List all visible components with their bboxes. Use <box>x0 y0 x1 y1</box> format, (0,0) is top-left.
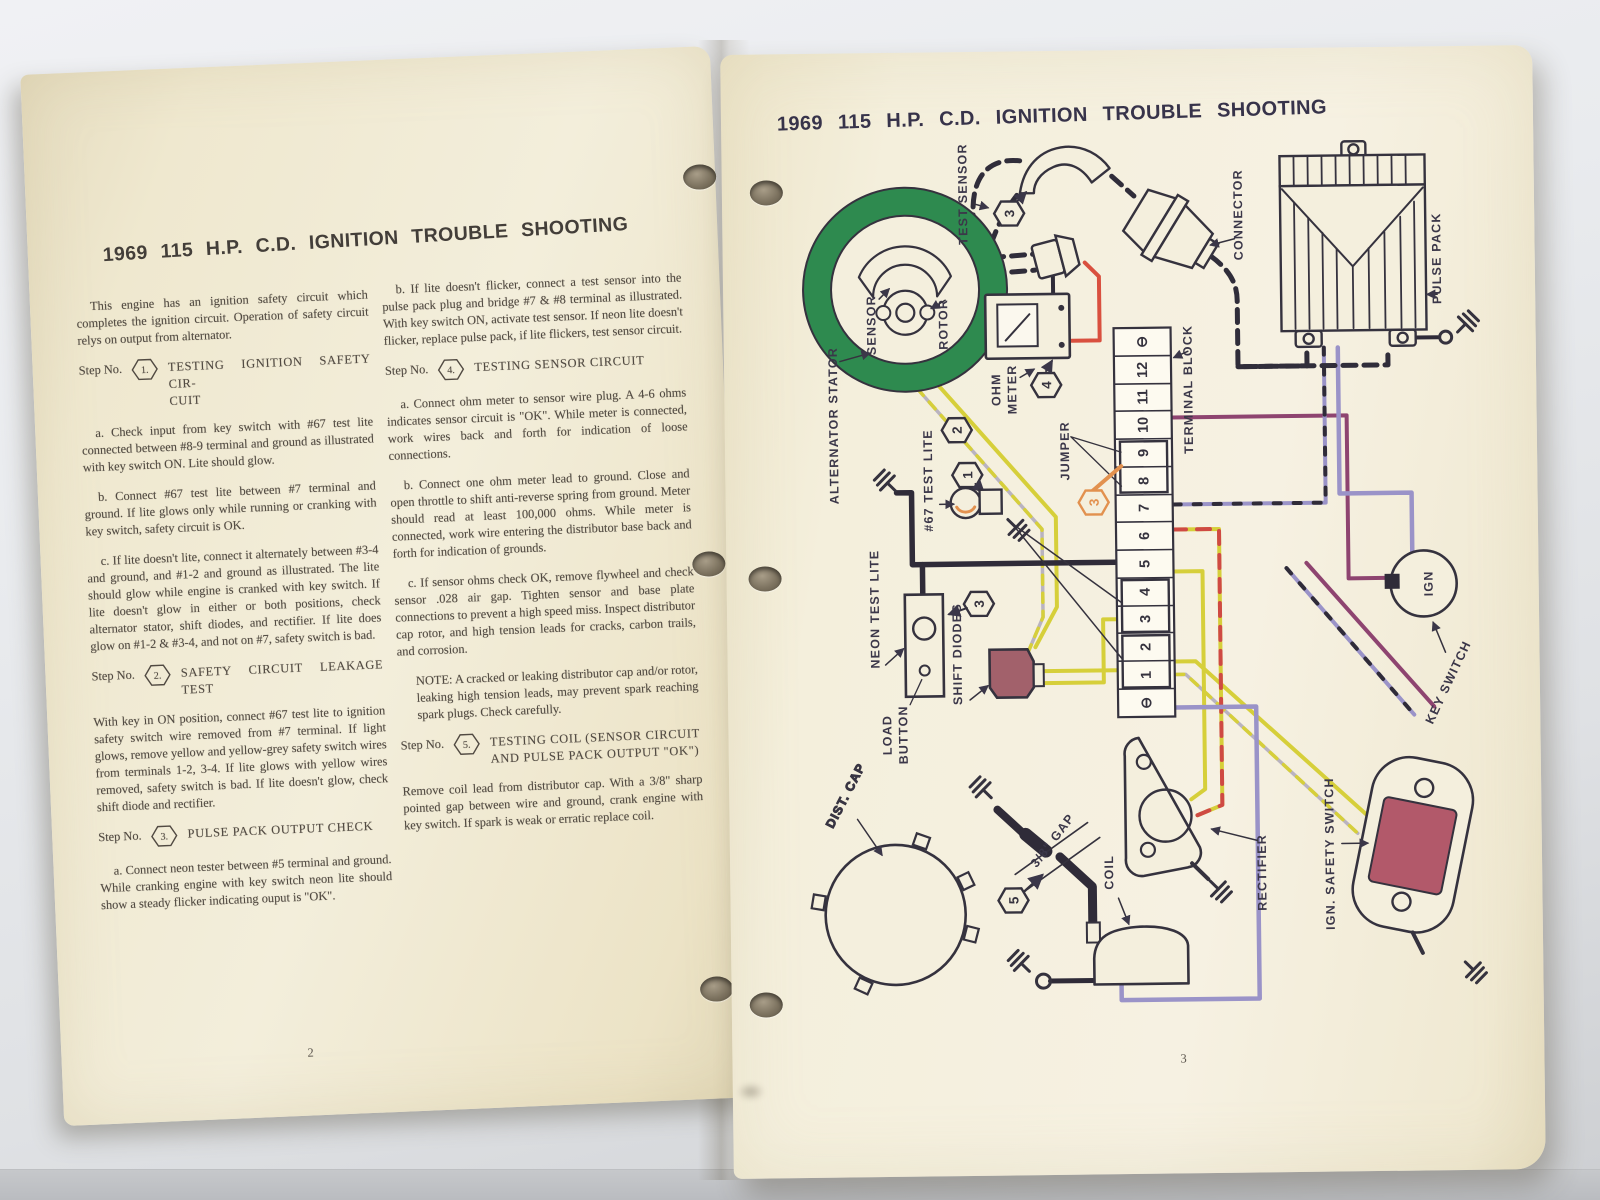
yellow-wire <box>1174 571 1206 799</box>
paragraph-3a: a. Connect neon tester between #5 termin… <box>99 851 393 914</box>
punch-hole <box>683 164 717 190</box>
rectifier: RECTIFIER <box>1124 736 1269 912</box>
paragraph-1c: c. If lite doesn't lite, connect it alte… <box>86 541 382 655</box>
paragraph-4c: c. If sensor ohms check OK, remove flywh… <box>394 563 697 660</box>
step-3-heading: Step No. 3. PULSE PACK OUTPUT CHECK <box>98 817 391 851</box>
svg-text:3.: 3. <box>161 831 169 842</box>
shift-diodes: SHIFT DIODES <box>950 602 1044 705</box>
svg-text:3: 3 <box>972 600 987 608</box>
rotor-label: ROTOR <box>936 299 951 350</box>
step-2-hexagon: 2. <box>142 662 173 688</box>
right-page-number: 3 <box>1180 1051 1186 1066</box>
ohm-meter-label: OHM <box>989 373 1003 406</box>
step-prefix: Step No. <box>78 361 122 380</box>
step-4-hexagon: 4. <box>436 356 467 382</box>
paragraph-5: Remove coil lead from distributor cap. W… <box>402 771 704 834</box>
step-2-title: SAFETY CIRCUIT LEAKAGE TEST <box>180 656 384 698</box>
pulse-pack-label: PULSE PACK <box>1429 212 1444 304</box>
left-column: This engine has an ignition safety circu… <box>76 287 394 927</box>
right-column: b. If lite doesn't flicker, connect a te… <box>381 269 704 847</box>
svg-text:8: 8 <box>1136 477 1152 485</box>
svg-text:9: 9 <box>1136 449 1152 457</box>
neon-test-lite: NEON TEST LITE LOAD BUTTON 3 <box>867 548 996 764</box>
sensor-label: SENSOR <box>864 295 879 355</box>
coil-pointer <box>1118 898 1128 924</box>
rectifier-label: RECTIFIER <box>1255 834 1270 911</box>
ground-icon <box>874 470 895 491</box>
ground-icon <box>1210 881 1231 902</box>
step-2-heading: Step No. 2. SAFETY CIRCUIT LEAKAGE TEST <box>91 656 384 702</box>
svg-text:2.: 2. <box>154 670 162 681</box>
coil: COIL <box>1007 854 1189 989</box>
jumper-label: JUMPER <box>1058 421 1073 480</box>
svg-text:6: 6 <box>1137 532 1153 540</box>
connector-label: CONNECTOR <box>1231 169 1246 260</box>
svg-text:1.: 1. <box>141 365 149 376</box>
svg-text:2: 2 <box>1138 643 1154 651</box>
load-button-label: LOAD <box>880 715 894 755</box>
key-switch-label: KEY SWITCH <box>1423 639 1474 727</box>
step-prefix: Step No. <box>98 827 142 846</box>
paragraph-3b: b. If lite doesn't flicker, connect a te… <box>381 269 684 349</box>
plum-wire <box>1172 415 1385 581</box>
svg-text:4: 4 <box>1039 381 1054 389</box>
paragraph-4a: a. Connect ohm meter to sensor wire plug… <box>386 384 689 464</box>
bulb <box>950 488 980 518</box>
rectifier-pointer <box>1212 828 1258 841</box>
svg-text:11: 11 <box>1135 389 1151 405</box>
left-page-title: 1969 115 H.P. C.D. IGNITION TROUBLE SHOO… <box>27 209 703 272</box>
step-prefix: Step No. <box>400 735 444 754</box>
marker-pointer <box>1024 875 1042 891</box>
svg-text:5.: 5. <box>463 739 471 750</box>
svg-text:3: 3 <box>1138 615 1154 623</box>
neon-pointer <box>885 649 903 665</box>
ground-icon <box>1465 962 1486 983</box>
ground-icon <box>1008 950 1029 971</box>
pulse-pack <box>1279 140 1451 347</box>
svg-text:3: 3 <box>1087 498 1102 506</box>
diode-tab <box>1034 664 1044 686</box>
ground-icon <box>1008 519 1029 540</box>
svg-text:⊖: ⊖ <box>1139 697 1155 709</box>
svg-text:⊖: ⊖ <box>1135 336 1151 348</box>
svg-text:5: 5 <box>1006 896 1021 904</box>
ground-icon <box>1457 311 1478 332</box>
svg-text:2: 2 <box>950 426 965 434</box>
key-switch-pointer <box>1433 622 1445 652</box>
shift-diodes-pointer <box>970 686 988 700</box>
paragraph-4b: b. Connect one ohm meter lead to ground.… <box>389 465 692 562</box>
svg-text:1: 1 <box>960 471 975 479</box>
svg-text:5: 5 <box>1137 560 1153 568</box>
key-switch-terminal <box>1385 574 1400 589</box>
marker-pointer <box>1046 361 1052 371</box>
step-1-heading: Step No. 1. TESTING IGNITION SAFETY CIR-… <box>78 350 372 413</box>
jumper: JUMPER 3 <box>1058 420 1122 514</box>
ign-label: IGN <box>1422 570 1436 596</box>
step-5-heading: Step No. 5. TESTING COIL (SENSOR CIRCUIT… <box>400 725 701 772</box>
yellow-wire <box>1043 619 1118 683</box>
intro-paragraph: This engine has an ignition safety circu… <box>76 287 370 350</box>
svg-text:10: 10 <box>1136 417 1152 433</box>
step-3-title: PULSE PACK OUTPUT CHECK <box>187 817 373 842</box>
step-prefix: Step No. <box>91 666 135 685</box>
ohm-meter-label: METER <box>1005 364 1020 414</box>
ign-safety-switch: IGN. SAFETY SWITCH <box>1322 749 1487 984</box>
right-page: 1969 115 H.P. C.D. IGNITION TROUBLE SHOO… <box>720 45 1546 1179</box>
yellow-wire <box>1044 670 1118 671</box>
svg-text:12: 12 <box>1135 362 1151 378</box>
ohm-meter-pointer <box>1020 369 1034 377</box>
step-4-title: TESTING SENSOR CIRCUIT <box>474 352 645 376</box>
paragraph-2: With key in ON position, connect #67 tes… <box>93 702 389 816</box>
alternate-connection-leaders <box>1012 522 1122 659</box>
svg-text:7: 7 <box>1137 504 1153 512</box>
red-wire <box>1071 262 1100 340</box>
ground-icon <box>970 777 991 798</box>
coil-insulator <box>1087 922 1100 942</box>
manual-photo: 1969 115 H.P. C.D. IGNITION TROUBLE SHOO… <box>0 0 1600 1200</box>
load-button-label: BUTTON <box>896 705 911 764</box>
test-sensor-pointer <box>974 204 988 208</box>
note-paragraph: NOTE: A cracked or leaking distributor c… <box>398 661 700 724</box>
alternator-stator-label: ALTERNATOR STATOR <box>826 347 842 504</box>
step-prefix: Step No. <box>385 361 429 380</box>
wiring-diagram: SENSOR ROTOR ALTERNATOR STATOR TEST SENS… <box>720 45 1546 1179</box>
test-lite-67-label: #67 TEST LITE <box>921 429 936 532</box>
dist-cap-label: DIST. CAP <box>823 761 868 831</box>
ign-safety-switch-label: IGN. SAFETY SWITCH <box>1322 777 1338 930</box>
step-4-heading: Step No. 4. TESTING SENSOR CIRCUIT <box>385 350 686 385</box>
ohm-meter: OHM METER 4 <box>985 294 1070 415</box>
test-sensor-label: TEST SENSOR <box>955 143 970 245</box>
neon-test-lite-label: NEON TEST LITE <box>867 550 882 669</box>
step-1-title: TESTING IGNITION SAFETY CIR- CUIT <box>168 350 373 409</box>
paragraph-1a: a. Check input from key switch with #67 … <box>81 413 375 476</box>
step-3-hexagon: 3. <box>149 823 180 849</box>
step-5-hexagon: 5. <box>452 731 483 757</box>
step-5-title: TESTING COIL (SENSOR CIRCUIT AND PULSE P… <box>490 725 701 768</box>
sensor-plug <box>1030 231 1082 283</box>
terminal-block-label: TERMINAL BLOCK <box>1180 325 1196 454</box>
left-page: 1969 115 H.P. C.D. IGNITION TROUBLE SHOO… <box>20 46 753 1126</box>
svg-text:4: 4 <box>1138 588 1154 596</box>
bulb-socket <box>979 490 1001 514</box>
coil-body <box>1094 926 1189 984</box>
left-page-number: 2 <box>307 1045 314 1060</box>
distributor-cap: DIST. CAP <box>810 759 980 995</box>
svg-text:1: 1 <box>1139 671 1155 679</box>
paragraph-1b: b. Connect #67 test lite between #7 term… <box>84 477 378 540</box>
svg-text:3: 3 <box>1002 209 1017 217</box>
rotor-hole <box>896 304 914 322</box>
punch-hole <box>692 551 726 577</box>
svg-text:4.: 4. <box>447 365 455 376</box>
step-1-hexagon: 1. <box>130 356 161 382</box>
terminal-block: ⊖ 12 11 10 9 8 7 6 5 4 3 2 1 ⊖ TERMINAL … <box>1114 325 1200 717</box>
punch-hole <box>700 976 734 1002</box>
shift-diodes-label: SHIFT DIODES <box>950 603 965 705</box>
coil-label: COIL <box>1102 855 1116 890</box>
